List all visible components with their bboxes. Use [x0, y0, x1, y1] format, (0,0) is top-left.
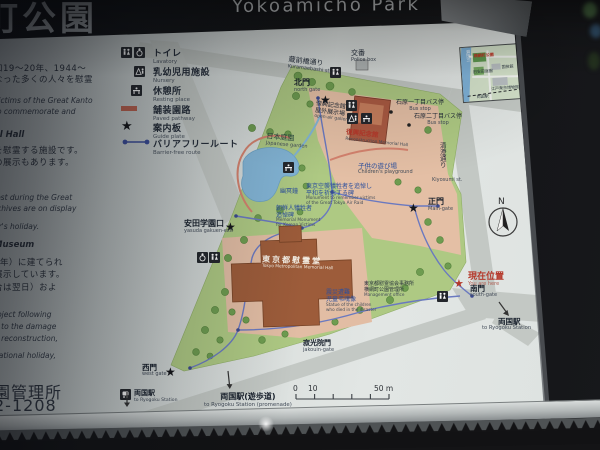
label-en: north gate: [294, 88, 320, 94]
route-line-icon: [121, 137, 153, 147]
left-text-line: roject following: [0, 310, 52, 319]
bus-stop-dot-1: [389, 110, 393, 114]
left-text-line: lost during the Great: [0, 193, 72, 202]
compass-n-label: N: [498, 197, 505, 207]
label-en: Bus stop: [396, 107, 444, 113]
sign-title-japanese: 町公園: [0, 0, 98, 40]
label-jp: 清澄通り: [438, 142, 445, 168]
left-text-line: victims of the Great Kanto: [0, 96, 93, 105]
left-text-line: Museum: [0, 240, 34, 250]
toilet-icon: [121, 46, 153, 59]
label-en: Management office: [364, 293, 414, 298]
legend-item-resting-place: 休憩所Resting place: [121, 84, 190, 103]
legend-label: 舗装園路: [153, 103, 195, 116]
left-text-line: al Hall: [0, 130, 24, 140]
left-text-line: の展示もあります。: [0, 156, 74, 168]
scale-bar-labels: 0 10 50 m: [293, 384, 393, 393]
label-south-gate: 南門 south-gate: [470, 285, 497, 299]
label-air-raid-monument: 東京空襲犠牲者を追悼し 平和を祈念する碑 Monument to remembe…: [306, 184, 375, 207]
label-police-box: 交番 Police box: [351, 50, 376, 63]
label-en: Children's playground: [358, 170, 413, 176]
lens-glare: [258, 416, 274, 432]
label-jakouin-gate: 寂光院門 jakouin-gate: [303, 340, 334, 353]
legend-label-en: Barrier-free route: [153, 150, 239, 156]
you-are-here-star: ★: [454, 277, 464, 290]
left-text-line: rchives are on display: [0, 204, 76, 213]
foliage: [588, 52, 600, 70]
label-en: jakouin-gate: [303, 348, 334, 354]
label-jp: 幽冥鐘: [280, 189, 298, 196]
legend-label: 案内板: [153, 121, 185, 134]
left-text-line: を慰霊する施設です。: [0, 144, 83, 156]
left-description-text: 和19～20年、1944～ なった多くの人々を慰霊 victims of the…: [0, 0, 130, 420]
label-jp: 両国駅: [134, 390, 178, 398]
label-en: to Ryogoku Station: [134, 398, 178, 403]
legend-item-lavatory: トイレLavatory: [121, 46, 182, 65]
label-en: Bus stop: [414, 121, 462, 127]
label-en: west gate: [142, 372, 167, 378]
label-korean-victims-monument: 朝鮮人犠牲者 追悼碑 Memorial Monument for Korean …: [276, 206, 320, 229]
inset-label-kokugikan: 国技館: [501, 64, 513, 69]
label-yasuda-gakuen-exit: 安田学園口 yasuda gakuen-exit: [184, 220, 233, 235]
paved-path-swatch: [121, 103, 153, 111]
street-label-kiyosumi: 清澄通り: [438, 142, 445, 168]
label-ryogoku-station-west: 両国駅 to Ryogoku Station: [134, 390, 178, 403]
street-label-kiyosumi-en: Kiyosumi st.: [432, 178, 462, 184]
foliage: [590, 24, 600, 38]
left-text-line: national holiday,: [0, 351, 56, 360]
inset-label-yasuda-garden: 旧安田庭園: [473, 69, 493, 75]
left-text-line: d to the damage: [0, 322, 56, 331]
legend-label: バリアフリールート: [153, 137, 239, 150]
left-text-line: g reconstruction,: [0, 334, 58, 343]
inset-label-park: 横網町公園: [474, 53, 494, 59]
star-main-gate: ★: [408, 201, 419, 215]
label-en: Kiyosumi st.: [432, 178, 462, 184]
legend-item-barrier-free: バリアフリールートBarrier-free route: [121, 137, 239, 156]
label-north-gate: 北門 north gate: [294, 79, 320, 94]
label-en: Main-gate: [428, 207, 453, 213]
inset-label-ryogoku-station: 両国駅: [477, 94, 489, 99]
legend-label: 乳幼児用施設: [153, 65, 210, 78]
label-memorial-hall: 東京都慰霊堂 Tokyo Metropolitan Memorial Hall: [262, 256, 334, 272]
star-west-gate: ★: [165, 365, 176, 379]
label-association-office: 東京都慰霊協会事務所 横網町公園管理所 Management office: [364, 282, 414, 298]
nursery-icon: [121, 65, 153, 78]
label-main-gate: 正門 Main-gate: [428, 198, 453, 213]
label-bus-stop-2: 石原二丁目バス停 Bus stop: [414, 114, 462, 126]
left-text-line: 1年）に建てられ: [0, 256, 63, 268]
rest-area-icon: [121, 84, 153, 97]
left-text-line: 展示しています。: [0, 268, 65, 280]
label-ryogoku-promenade: 両国駅(遊歩道) to Ryogoku Station (promenade): [204, 393, 292, 408]
photo-of-park-sign: 町公園 Yokoamicho Park: [0, 0, 600, 450]
svg-text:10: 10: [308, 384, 318, 393]
compass: N: [489, 197, 517, 236]
legend-label: トイレ: [153, 46, 182, 59]
label-en: for Korean Victims: [276, 224, 320, 229]
label-en: to Ryogoku Station: [482, 326, 531, 332]
label-en: Police box: [351, 58, 376, 64]
label-en: yasuda gakuen-exit: [184, 229, 233, 235]
star-icon: ★: [121, 121, 153, 132]
label-ryogoku-station-east: 両国駅 to Ryogoku Station: [482, 318, 531, 332]
left-text-line: to commemorate and: [0, 107, 75, 116]
left-text-line: 合は翌日）およ: [0, 281, 57, 293]
foliage: [583, 2, 597, 18]
label-jp: 両国駅(遊歩道): [204, 393, 292, 402]
label-yumei-bell: 幽冥鐘: [280, 189, 298, 196]
left-text-line: ar's holiday.: [0, 222, 39, 231]
area-inset-map: 隅田川 横網町公園 旧安田庭園 国技館 江戸東京博物館 両国駅: [459, 43, 525, 103]
left-text-line: なった多くの人々を慰霊: [0, 73, 93, 85]
svg-text:50 m: 50 m: [374, 384, 393, 393]
label-children-playground: 子供の遊び場 Children's playground: [358, 163, 413, 176]
label-bus-stop-1: 石原一丁目バス停 Bus stop: [396, 100, 444, 112]
svg-text:0: 0: [293, 384, 298, 393]
legend-item-nursery: 乳幼児用施設Nursery: [121, 65, 210, 84]
label-west-gate: 西門 west gate: [142, 364, 167, 378]
sign-title-english: Yokoamicho Park: [232, 0, 421, 17]
label-en: who died in the disaster: [326, 308, 376, 313]
phone-number-fragment: 2-1208: [0, 396, 57, 415]
scale-bar: [296, 394, 389, 399]
sign-board: ★ ★ ★ ★ ★ N: [0, 0, 600, 450]
label-en: south-gate: [470, 293, 497, 299]
legend-label: 休憩所: [153, 84, 190, 97]
